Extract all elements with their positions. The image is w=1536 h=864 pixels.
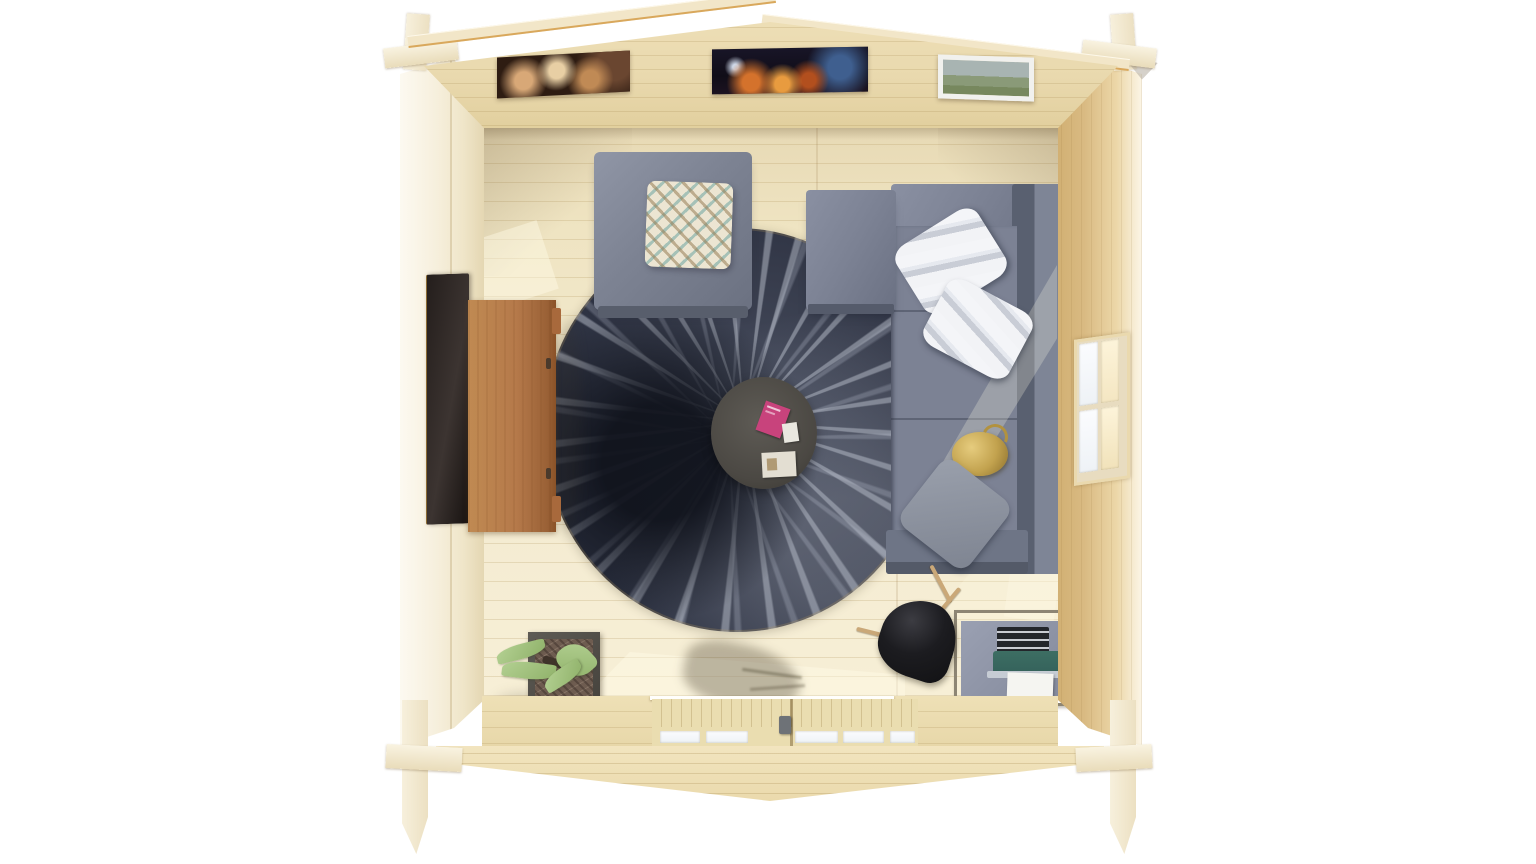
wood-grain	[468, 300, 556, 532]
sofa-chaise-base	[808, 304, 894, 314]
corner-tab-bl	[385, 744, 462, 772]
door-pane	[843, 731, 884, 743]
seat-seam	[891, 418, 1017, 420]
magazine-photo	[767, 458, 778, 471]
window-pane	[1101, 339, 1119, 404]
right-window	[1074, 332, 1130, 486]
sideboard-handle	[546, 358, 551, 369]
picture-left	[497, 51, 630, 99]
window-pane	[1079, 342, 1098, 407]
window-pane	[1079, 409, 1098, 474]
corner-tab-br	[1075, 744, 1152, 772]
typewriter-keys	[997, 627, 1049, 653]
door-pane	[660, 731, 700, 743]
corner-post-bl	[402, 700, 428, 854]
sideboard	[468, 300, 556, 532]
door-pane	[795, 731, 838, 743]
front-deck	[436, 744, 1104, 804]
sideboard-bracket	[552, 496, 561, 522]
picture-center	[712, 47, 868, 95]
pattern-cushion	[645, 181, 734, 270]
door-pane	[890, 731, 915, 743]
window-pane	[1101, 406, 1119, 471]
sideboard-bracket	[552, 308, 561, 334]
side-desk	[954, 610, 1074, 706]
door-handle	[779, 716, 791, 734]
sofa-chaise	[806, 190, 896, 310]
corner-post-br	[1110, 700, 1136, 854]
deck-planks	[436, 744, 1104, 804]
picture-right	[938, 54, 1034, 101]
magazine	[761, 451, 796, 478]
door-pane	[706, 731, 748, 743]
ottoman-base	[598, 306, 748, 318]
book-text-line	[765, 410, 775, 415]
white-card	[782, 422, 799, 443]
cabin-topdown-render	[0, 0, 1536, 864]
tv-screen	[426, 273, 469, 525]
sideboard-handle	[546, 468, 551, 479]
sofa-back-right	[1012, 184, 1062, 574]
